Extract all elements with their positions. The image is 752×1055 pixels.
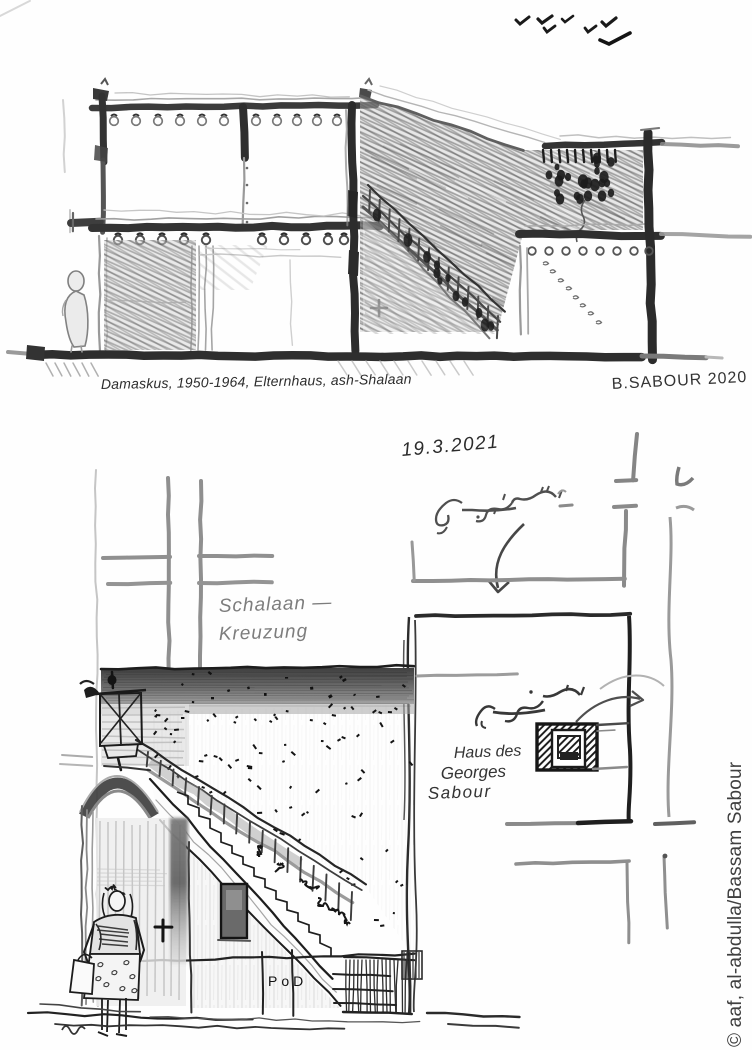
svg-text:Sabour: Sabour xyxy=(427,782,491,803)
svg-text:Schalaan —: Schalaan — xyxy=(218,592,332,617)
svg-text:Georges: Georges xyxy=(440,762,506,783)
svg-text:© aaf, al-abdulla/Bassam Sabou: © aaf, al-abdulla/Bassam Sabour xyxy=(725,761,746,1047)
svg-text:Kreuzung: Kreuzung xyxy=(218,621,308,645)
svg-text:Haus des: Haus des xyxy=(454,743,522,762)
svg-text:PοD: PοD xyxy=(268,973,307,989)
